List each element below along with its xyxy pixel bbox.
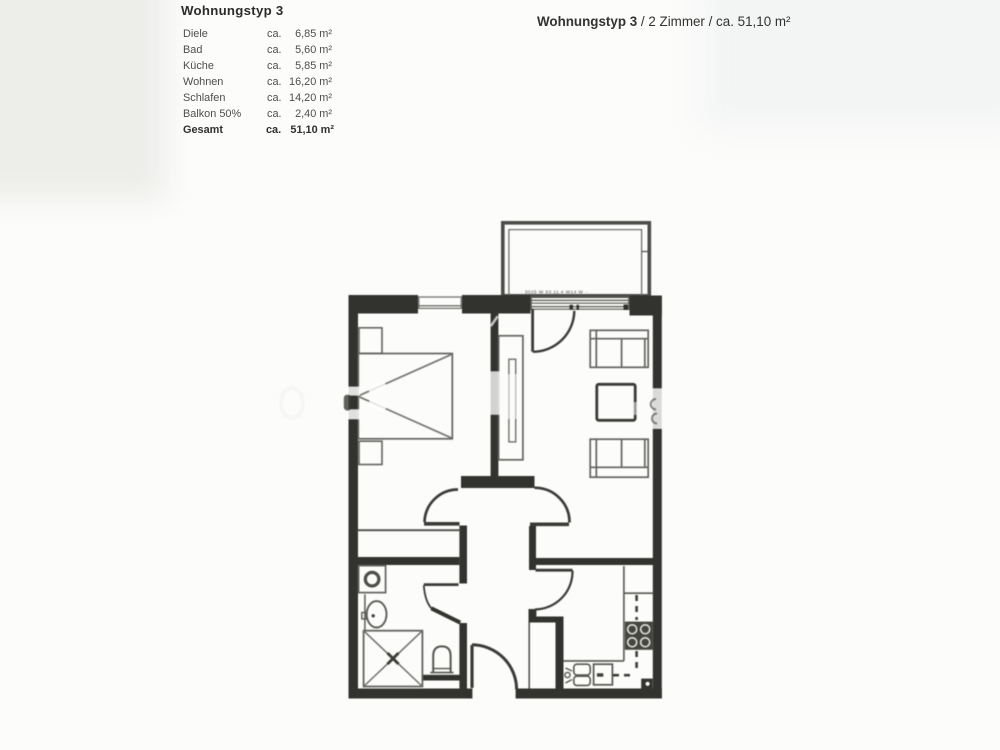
svg-text:· 3025 W 93.11.4 W14 W ··: · 3025 W 93.11.4 W14 W ·· (521, 290, 589, 296)
